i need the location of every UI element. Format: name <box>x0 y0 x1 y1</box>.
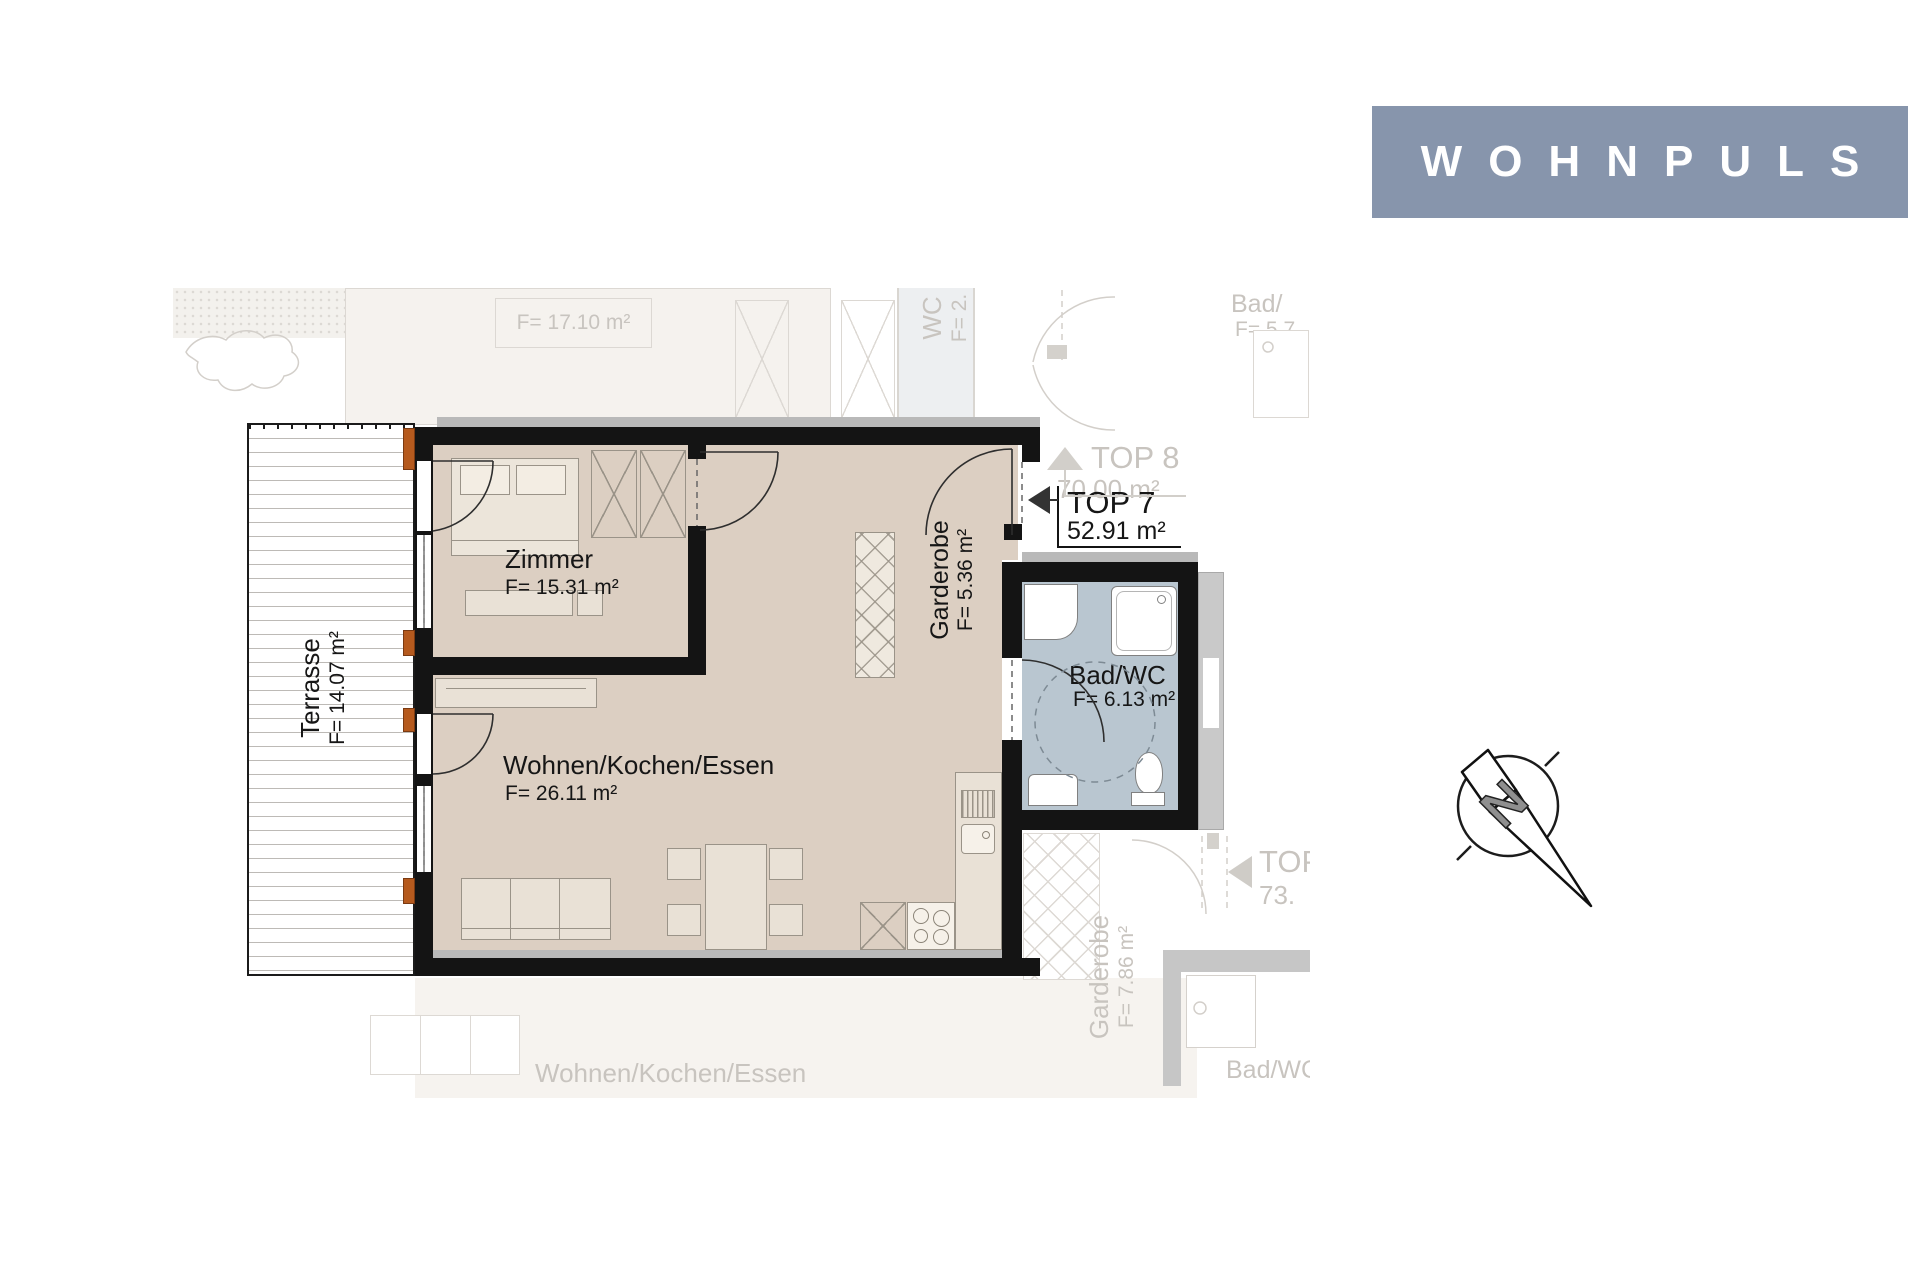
neighbor-wall <box>1163 950 1310 972</box>
wall-bath-bottom <box>1002 810 1198 830</box>
garderobe-area: F= 5.36 m² <box>954 529 978 631</box>
wall-cap <box>1022 552 1198 562</box>
toilet-tank <box>1131 792 1165 806</box>
burner-icon <box>933 910 950 927</box>
window-sill <box>433 950 1002 958</box>
faded-wardrobe-icon <box>735 300 789 418</box>
dish-drainer-icon <box>961 790 995 818</box>
window-frame <box>403 708 415 732</box>
burner-icon <box>913 908 929 924</box>
dining-table <box>705 844 767 950</box>
floorplan-canvas: F= 17.10 m² WC F= 2. Bad/ F= 5.7 TOP 8 7… <box>173 288 1310 1098</box>
zimmer-area: F= 15.31 m² <box>505 576 619 600</box>
terrasse-name: Terrasse <box>296 638 326 738</box>
brand-logo-text: WOHNPULS <box>1395 137 1886 187</box>
chair <box>769 904 803 936</box>
wardrobe-icon <box>640 450 686 538</box>
wall-top <box>415 427 1040 445</box>
shower <box>1111 586 1177 656</box>
terrace-edge-ticks <box>249 423 413 429</box>
faded-room-top-area: F= 17.10 m² <box>517 311 631 335</box>
pillow <box>460 465 510 495</box>
north-compass-icon: N <box>1457 750 1591 906</box>
compass-needle-tail <box>1490 790 1591 906</box>
sofa-cushion-line <box>510 879 511 939</box>
door-hinge-block <box>688 526 706 540</box>
chair <box>769 848 803 880</box>
divider <box>420 1016 421 1074</box>
garderobe-name: Garderobe <box>926 520 955 640</box>
faded-shower-top <box>1253 330 1309 418</box>
garderobe-label: Garderobe F= 5.36 m² <box>920 460 984 700</box>
door-opening <box>417 714 431 774</box>
faucet-icon <box>982 831 990 839</box>
unit-label: TOP 7 <box>1067 487 1181 518</box>
door-hinge-block <box>688 445 706 459</box>
compass-north-letter: N <box>1469 769 1539 839</box>
compass-ticks <box>1457 752 1559 860</box>
faded-wc-name: WC <box>918 296 948 339</box>
washbasin <box>1028 774 1078 806</box>
faded-bad-top-name: Bad/ <box>1231 290 1282 319</box>
bad-area: F= 6.13 m² <box>1073 688 1175 712</box>
window-glass-line <box>423 786 425 872</box>
brand-banner: WOHNPULS <box>1372 106 1908 218</box>
cooktop <box>907 902 955 950</box>
window-opening <box>417 786 431 872</box>
wall-entry <box>1022 427 1040 462</box>
faded-bad-bottom-name: Bad/WC <box>1226 1056 1310 1085</box>
floorplan-page: { "brand": { "name": "WOHNPULS" }, "plan… <box>0 0 1920 1280</box>
wall-interior <box>688 540 706 675</box>
wall-bottom <box>415 958 1040 976</box>
drain-icon <box>1157 595 1166 604</box>
neighbor-label: TOP <box>1259 844 1310 880</box>
faded-wardrobe-icon <box>841 300 895 418</box>
faded-wc-label: WC F= 2. <box>917 288 973 398</box>
wall-interior <box>415 657 700 675</box>
bed <box>451 458 579 556</box>
door-opening <box>417 461 431 531</box>
chair <box>667 904 701 936</box>
unit-label-box: TOP 7 52.91 m² <box>1057 486 1181 548</box>
faded-area-label-box: F= 17.10 m² <box>495 298 652 348</box>
window-glass-line <box>423 535 425 628</box>
faded-garderobe-label: Garderobe F= 7.86 m² <box>1080 857 1144 1097</box>
compass-needle-head <box>1462 750 1516 812</box>
wall-bath-left <box>1002 740 1022 958</box>
wohnen-area: F= 26.11 m² <box>505 782 617 806</box>
window-frame <box>403 878 415 904</box>
window-frame <box>403 630 415 656</box>
terrasse-area: F= 14.07 m² <box>326 631 350 745</box>
faded-shower-bottom <box>1186 975 1256 1048</box>
faded-wohnen-bottom-name: Wohnen/Kochen/Essen <box>535 1058 806 1089</box>
wall-bath-left <box>1002 562 1022 658</box>
burner-icon <box>914 929 928 943</box>
closet <box>855 532 895 678</box>
zimmer-name: Zimmer <box>505 544 593 575</box>
kitchen-sink <box>961 824 995 854</box>
wall-cap <box>437 417 1040 427</box>
sofa-cushion-line <box>559 879 560 939</box>
compass-circle <box>1458 756 1558 856</box>
wardrobe-icon <box>591 450 637 538</box>
window-opening <box>417 535 431 628</box>
terrasse-label: Terrasse F= 14.07 m² <box>291 568 355 808</box>
neighbor-area: 73. <box>1259 880 1295 911</box>
neighbor-wall <box>1163 950 1181 1086</box>
sideboard <box>435 678 597 708</box>
wall-bath-top <box>1002 562 1197 582</box>
chair <box>667 848 701 880</box>
bad-name: Bad/WC <box>1069 660 1166 691</box>
sideboard-handle-line <box>446 688 586 689</box>
faded-wc-area: F= 2. <box>948 294 972 342</box>
window-frame <box>403 428 415 470</box>
top8-label: TOP 8 <box>1091 440 1179 476</box>
faded-sideboard <box>370 1015 520 1075</box>
faded-garderobe-name: Garderobe <box>1085 915 1115 1039</box>
wall-bath-right <box>1178 562 1198 830</box>
faded-garderobe-area: F= 7.86 m² <box>1115 926 1139 1028</box>
bed-foot-line <box>452 540 578 541</box>
washbasin <box>1024 584 1078 640</box>
door-hinge-block <box>1004 524 1022 540</box>
pillow <box>516 465 566 495</box>
sofa-back-line <box>462 928 610 929</box>
unit-area: 52.91 m² <box>1067 518 1181 546</box>
shaft-opening <box>1203 658 1219 728</box>
kitchen-appliance-icon <box>860 902 906 950</box>
toilet-bowl <box>1135 752 1163 794</box>
burner-icon <box>933 929 949 945</box>
sofa <box>461 878 611 940</box>
wohnen-name: Wohnen/Kochen/Essen <box>503 750 774 781</box>
divider <box>470 1016 471 1074</box>
